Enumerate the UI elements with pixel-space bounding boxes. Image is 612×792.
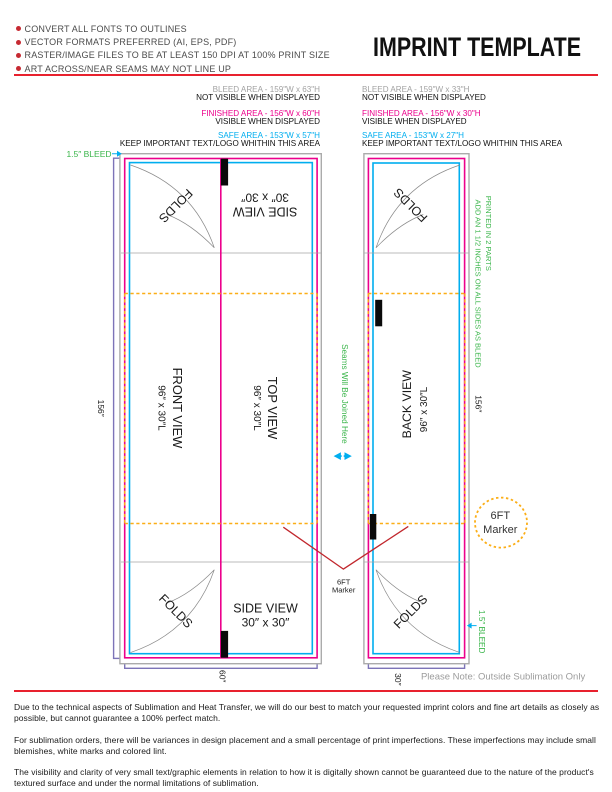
svg-text:60″: 60″ <box>217 670 227 682</box>
svg-text:TOP VIEW: TOP VIEW <box>265 377 280 440</box>
svg-text:96″ x 30″L: 96″ x 30″L <box>251 385 262 431</box>
svg-text:1.5″ BLEED: 1.5″ BLEED <box>66 149 111 159</box>
svg-text:30″ x 30″: 30″ x 30″ <box>242 616 291 630</box>
svg-text:ADD AN 1 1/2 INCHES ON ALL SID: ADD AN 1 1/2 INCHES ON ALL SIDES AS BLEE… <box>474 200 483 369</box>
svg-text:156″: 156″ <box>96 400 106 417</box>
svg-text:SIDE VIEW: SIDE VIEW <box>233 601 298 615</box>
svg-text:Marker: Marker <box>332 585 356 594</box>
svg-text:PRINTED IN 2 PARTS: PRINTED IN 2 PARTS <box>484 196 493 271</box>
svg-text:Please Note: Outside Sublimati: Please Note: Outside Sublimation Only <box>421 671 585 682</box>
svg-text:30″: 30″ <box>393 673 403 685</box>
svg-text:FRONT VIEW: FRONT VIEW <box>170 368 185 450</box>
svg-text:96″ x 30″L: 96″ x 30″L <box>419 386 430 432</box>
svg-text:156″: 156″ <box>474 395 484 412</box>
svg-text:1.5″ BLEED: 1.5″ BLEED <box>477 610 486 653</box>
svg-text:96″ x 30″L: 96″ x 30″L <box>155 385 166 431</box>
svg-text:6FT: 6FT <box>491 510 511 522</box>
svg-text:BACK VIEW: BACK VIEW <box>400 370 414 439</box>
svg-text:Marker: Marker <box>483 524 518 536</box>
svg-text:SIDE VIEW: SIDE VIEW <box>233 205 298 219</box>
svg-text:30″ x 30″: 30″ x 30″ <box>240 190 289 204</box>
svg-text:Seams Will Be Joined Here: Seams Will Be Joined Here <box>340 344 349 444</box>
